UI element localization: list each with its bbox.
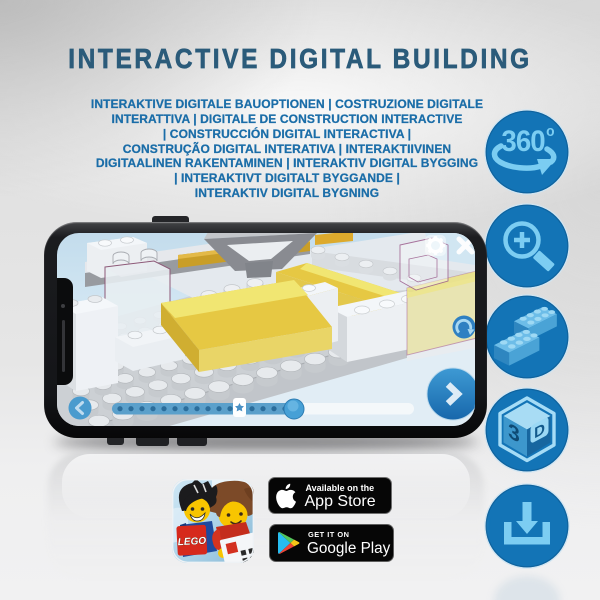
svg-text:GET IT ON: GET IT ON xyxy=(308,530,349,539)
svg-text:o: o xyxy=(546,124,555,141)
svg-text:360: 360 xyxy=(501,125,544,158)
svg-text:Available on the: Available on the xyxy=(306,483,375,493)
svg-text:Google Play: Google Play xyxy=(307,540,391,557)
svg-text:App Store: App Store xyxy=(305,493,376,510)
svg-text:LEGO: LEGO xyxy=(178,536,207,548)
